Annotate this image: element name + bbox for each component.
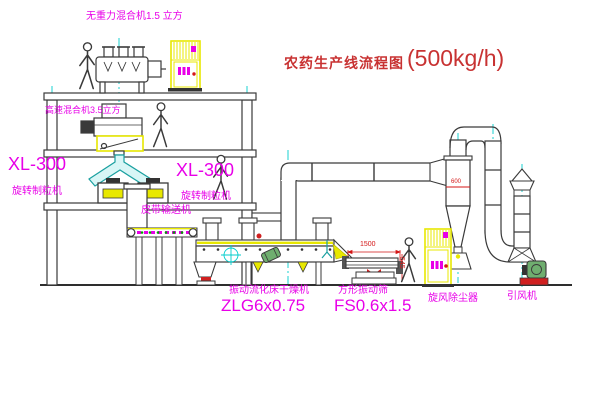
gravity-free-mixer [96,47,166,93]
control-cabinet-a [168,41,202,92]
high-speed-mixer [81,104,143,155]
title-capacity: (500kg/h) [407,45,504,72]
belt-conveyor [127,228,197,285]
person-ground [402,238,416,282]
cabinet-base [168,88,202,92]
spring-support [253,262,263,272]
control-cabinet-b [422,229,454,287]
rain-cap [512,169,532,181]
surge-bin [124,184,150,228]
person-roof [80,43,94,89]
diagram-title: 农药生产线流程图 (500kg/h) [284,45,504,73]
square-vibrating-sieve [342,250,403,284]
fan-base [520,278,548,285]
spring-support [298,262,308,272]
fluid-bed-dryer [194,218,352,285]
induced-draft-fan [520,261,548,285]
person-third-floor [214,155,228,199]
title-chinese: 农药生产线流程图 [284,45,404,73]
flow-diagram: 无重力混合机1.5 立方 高速混合机3.5立方 XL-300 旋转制粒机 XL-… [0,0,600,403]
indicator-mark [191,46,196,52]
dryer-discharge-hopper [194,262,216,277]
person-second-floor [154,103,168,147]
exhaust-duct [281,158,448,240]
cyclone-inlet-transition [430,158,448,186]
